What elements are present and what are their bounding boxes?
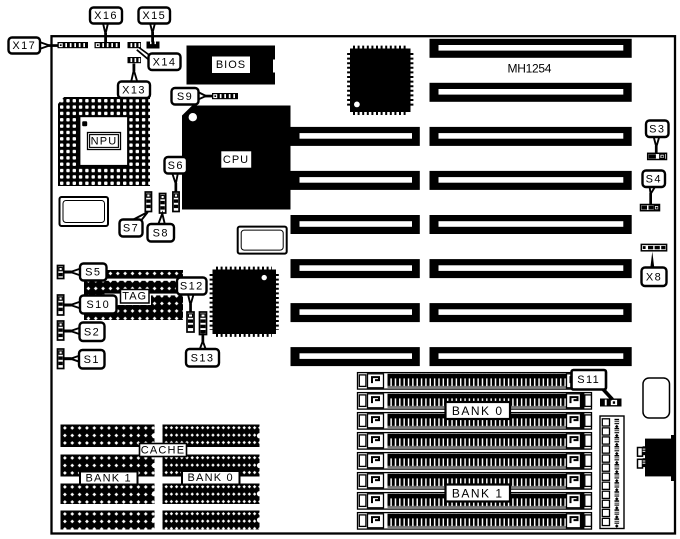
svg-text:X14: X14: [153, 56, 177, 68]
svg-text:S7: S7: [123, 223, 139, 235]
svg-text:S9: S9: [177, 91, 193, 103]
svg-text:S4: S4: [646, 173, 662, 185]
svg-text:S13: S13: [191, 352, 215, 364]
svg-text:S12: S12: [180, 281, 204, 293]
svg-text:NPU: NPU: [91, 136, 118, 148]
svg-text:X13: X13: [122, 84, 146, 96]
svg-text:BANK 1: BANK 1: [86, 472, 132, 484]
svg-text:S8: S8: [153, 227, 169, 239]
svg-text:S5: S5: [85, 267, 101, 279]
svg-text:X15: X15: [142, 10, 166, 22]
svg-text:S2: S2: [84, 326, 100, 338]
svg-text:TAG: TAG: [122, 291, 147, 303]
svg-text:MH1254: MH1254: [508, 61, 552, 75]
svg-text:S3: S3: [649, 123, 665, 135]
svg-text:CPU: CPU: [223, 154, 249, 166]
svg-text:BANK 0: BANK 0: [188, 472, 234, 484]
svg-text:BIOS: BIOS: [216, 59, 246, 71]
svg-text:BANK 0: BANK 0: [452, 404, 504, 418]
svg-text:BANK 1: BANK 1: [452, 486, 504, 500]
svg-text:S11: S11: [577, 374, 600, 386]
svg-text:S6: S6: [168, 160, 184, 172]
svg-text:CACHE: CACHE: [141, 445, 186, 457]
svg-text:S1: S1: [84, 354, 100, 366]
svg-text:X8: X8: [646, 271, 662, 283]
svg-text:S10: S10: [86, 299, 110, 311]
svg-text:X16: X16: [94, 10, 118, 22]
svg-text:X17: X17: [12, 40, 36, 52]
